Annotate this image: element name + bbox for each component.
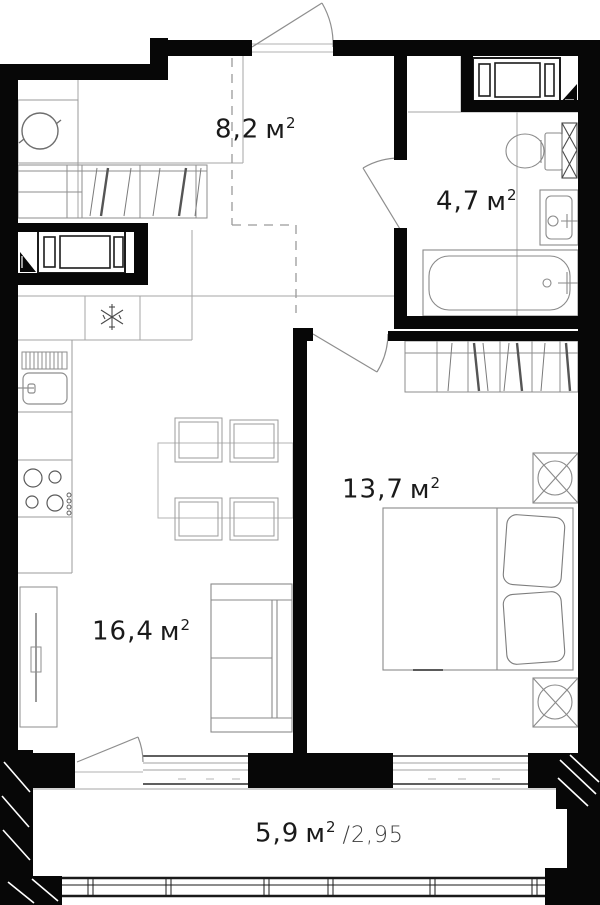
bottom-wall-mid — [248, 753, 393, 788]
bedroom-door-swing — [313, 334, 388, 372]
kitchen-sink-icon — [18, 373, 67, 404]
bath-niche-bottom — [461, 100, 582, 112]
sofa-icon — [211, 584, 292, 732]
corner-bottom-left-1 — [0, 750, 33, 882]
dish-drainer-icon — [22, 352, 67, 369]
kitchen-niche-bottom — [17, 273, 148, 285]
balcony-area-value: 5,9 — [255, 819, 299, 849]
hallway-zone-dashed-line — [232, 58, 296, 313]
bathroom-area-unit: м — [486, 187, 507, 217]
top-wall-c — [333, 40, 581, 56]
top-wall-b — [166, 40, 252, 56]
corner-bottom-right-2 — [545, 868, 600, 905]
living-area-label: 16,4м2 — [92, 616, 191, 647]
tv-stand-icon — [20, 587, 57, 727]
bathroom-washing-machine — [473, 58, 577, 103]
balcony-area-label: 5,9м2/2,95 — [255, 818, 404, 849]
rotation-circle-icon — [19, 113, 61, 149]
living-area-unit: м — [160, 617, 181, 647]
bathroom-area-value: 4,7 — [436, 187, 480, 217]
walls — [0, 38, 600, 905]
top-wall-step — [150, 38, 168, 80]
bathtub-icon — [423, 250, 578, 316]
bathroom-area-label: 4,7м2 — [436, 186, 518, 217]
hallway-area-unit: м — [265, 115, 286, 145]
top-wall-a — [0, 64, 160, 80]
kitchen-fridge — [85, 296, 140, 340]
bedroom-top-wall — [388, 331, 582, 341]
balcony-area-unit: м — [305, 819, 326, 849]
bedroom-wardrobe — [405, 341, 578, 392]
wardrobe-hangers-icon — [448, 343, 570, 391]
balcony-coefficient: /2,95 — [343, 823, 404, 848]
pillow-icon — [503, 514, 566, 665]
dining-table — [158, 443, 293, 518]
toilet-icon — [506, 133, 562, 170]
balcony-door-swing — [75, 737, 143, 772]
entrance-door-swing — [252, 3, 333, 52]
bedroom-area-unit: м — [410, 475, 431, 505]
kitchen-washing-machine — [20, 231, 125, 273]
bedroom-area-value: 13,7 — [342, 475, 404, 505]
bath-bottom-wall — [398, 316, 582, 329]
apartment-floor-plan: 8,2м2 4,7м2 13,7м2 16,4м2 5,9м2/2,95 — [0, 0, 600, 905]
hallway-area-value: 8,2 — [215, 115, 259, 145]
hall-bath-wall-upper — [394, 56, 407, 160]
hallway-area-label: 8,2м2 — [215, 114, 297, 145]
chair-icon — [175, 418, 222, 462]
balcony-glazing — [10, 878, 583, 896]
chair-icon — [230, 498, 278, 540]
vent-shaft-icon — [562, 123, 577, 178]
living-bedroom-wall — [293, 328, 307, 755]
bedroom-window — [393, 756, 528, 784]
floor-plan-drawing — [0, 0, 600, 905]
nightstand-cross-icon — [533, 453, 578, 503]
washbasin-icon — [540, 190, 578, 245]
bathroom-door-swing — [363, 158, 400, 229]
kitchen-counter — [18, 340, 72, 573]
living-room-window — [143, 756, 248, 784]
fridge-snowflake-icon — [101, 304, 123, 330]
hallway-wardrobe — [18, 165, 207, 218]
hallway-closet-cabinet — [18, 100, 78, 163]
dining-chairs — [175, 418, 278, 540]
chair-icon — [175, 498, 222, 540]
chair-icon — [230, 420, 278, 462]
nightstand-cross-icon — [533, 678, 578, 727]
kitchen-niche-top — [17, 223, 148, 232]
living-area-value: 16,4 — [92, 617, 154, 647]
bedroom-area-label: 13,7м2 — [342, 474, 441, 505]
stove-burners-icon — [24, 469, 71, 515]
wardrobe-hangers-icon — [90, 168, 201, 216]
hall-bath-wall-lower — [394, 228, 407, 329]
bed-icon — [383, 508, 573, 670]
